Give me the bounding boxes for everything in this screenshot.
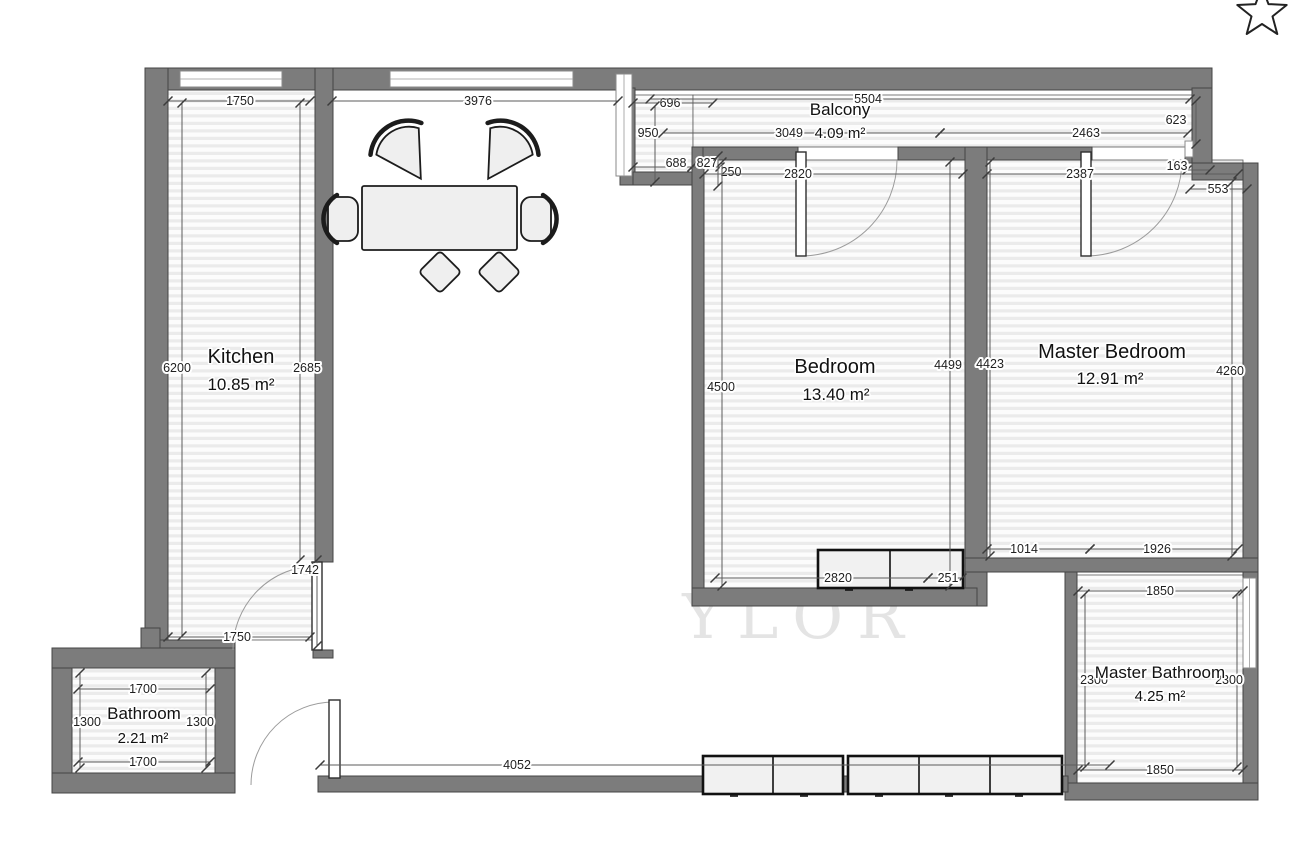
wall-master-bottom — [965, 558, 1258, 572]
room-label-master-bathroom: Master Bathroom — [1095, 663, 1225, 682]
dimension-label: 2387 — [1066, 167, 1094, 181]
dining-chair — [478, 251, 520, 293]
dimension-label: 1700 — [129, 755, 157, 769]
dining-set — [323, 111, 556, 294]
dimension-label: 1850 — [1146, 763, 1174, 777]
room-area-kitchen: 10.85 m² — [207, 375, 274, 394]
dining-armchair — [363, 111, 447, 195]
wall-master-top-a — [987, 147, 1092, 160]
dimension-label: 1850 — [1146, 584, 1174, 598]
dimension: 3976 — [328, 94, 623, 108]
dimension-label: 2820 — [824, 571, 852, 585]
dimension-label: 623 — [1166, 113, 1187, 127]
wall-bedroom-bottom — [692, 588, 977, 606]
window-master-bathroom — [1243, 578, 1256, 668]
dimension-label: 1300 — [186, 715, 214, 729]
wall-balcony-right — [1192, 88, 1212, 163]
dimension-label: 1750 — [226, 94, 254, 108]
dining-side-chair — [521, 195, 557, 243]
floor-plan-page: YLOR — [0, 0, 1297, 842]
dimension-label: 2820 — [784, 167, 812, 181]
wall-top — [145, 68, 1212, 90]
wall-bathroom-right — [215, 668, 235, 773]
dimension-label: 4423 — [976, 357, 1004, 371]
dining-table — [362, 186, 517, 250]
dimension-label: 1300 — [73, 715, 101, 729]
dimension-label: 1014 — [1010, 542, 1038, 556]
dimension-label: 2685 — [293, 361, 321, 375]
dimension-label: 4052 — [503, 758, 531, 772]
entrance-door — [251, 700, 340, 785]
dimension-label: 3049 — [775, 126, 803, 140]
dimension-label: 2463 — [1072, 126, 1100, 140]
window-kitchen-top — [180, 71, 282, 87]
window-balcony-left — [616, 74, 632, 176]
wall-kitchen-right-stub — [313, 650, 333, 658]
cabinet-row — [703, 756, 1062, 796]
wall-master-right — [1243, 163, 1258, 572]
dining-chair — [419, 251, 461, 293]
wall-bedroom-divider — [965, 147, 987, 606]
wall-bedroom-left — [692, 147, 704, 606]
dimension-label: 1700 — [129, 682, 157, 696]
floor-plan-drawing: YLOR — [0, 0, 1297, 842]
room-label-balcony: Balcony — [810, 100, 871, 119]
dimension-label: 696 — [660, 96, 681, 110]
wall-kitchen-right — [315, 68, 333, 562]
dimension-label: 250 — [721, 165, 742, 179]
dimension-label: 4499 — [934, 358, 962, 372]
dimension-label: 950 — [638, 126, 659, 140]
room-area-balcony: 4.09 m² — [815, 125, 866, 142]
wall-master-bathroom-bottom — [1065, 783, 1258, 800]
dimension-label: 827 — [697, 156, 718, 170]
dimension-label: 688 — [666, 156, 687, 170]
dining-armchair — [463, 111, 547, 195]
wall-master-bathroom-left — [1065, 572, 1077, 798]
room-area-bathroom: 2.21 m² — [118, 730, 169, 747]
room-area-master-bathroom: 4.25 m² — [1135, 688, 1186, 705]
favorite-star-icon[interactable] — [1237, 0, 1286, 34]
dimension-label: 251 — [938, 571, 959, 585]
wall-bathroom-bottom — [52, 773, 235, 793]
wall-bathroom-top — [52, 648, 235, 668]
dining-side-chair — [323, 195, 358, 243]
wall-notch — [1185, 141, 1193, 157]
window-living-top — [390, 71, 573, 87]
room-label-kitchen: Kitchen — [208, 346, 275, 368]
dimension-label: 1926 — [1143, 542, 1171, 556]
dimension-label: 3976 — [464, 94, 492, 108]
dimension-label: 4500 — [707, 380, 735, 394]
dimension-label: 1742 — [291, 563, 319, 577]
room-area-bedroom: 13.40 m² — [802, 385, 869, 404]
dimension-label: 4260 — [1216, 364, 1244, 378]
room-label-bathroom: Bathroom — [107, 704, 181, 723]
wall-bathroom-stub — [141, 628, 160, 650]
balcony-floor — [693, 95, 1192, 147]
dimension-label: 1750 — [223, 630, 251, 644]
room-area-master-bedroom: 12.91 m² — [1076, 369, 1143, 388]
room-label-master-bedroom: Master Bedroom — [1038, 341, 1186, 363]
dimension-label: 553 — [1208, 182, 1229, 196]
dimension-label: 6200 — [163, 361, 191, 375]
wall-kitchen-left — [145, 68, 168, 645]
dimension-label: 163 — [1167, 159, 1188, 173]
room-label-bedroom: Bedroom — [794, 356, 875, 378]
